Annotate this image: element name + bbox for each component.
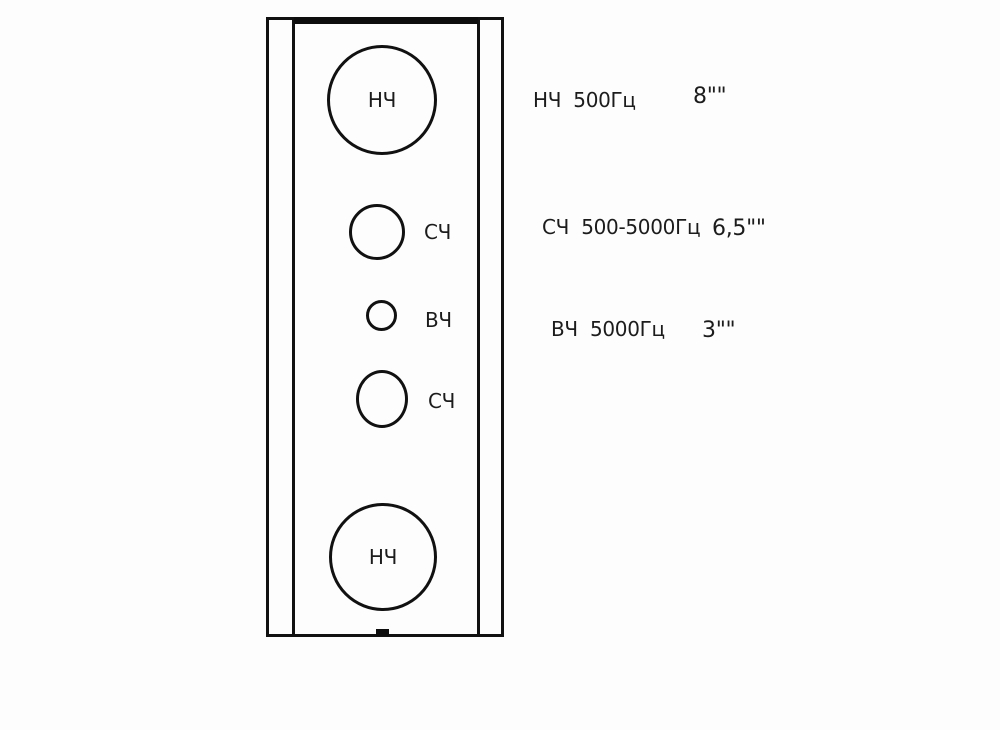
annotation-midrange-frequency: СЧ 500-5000Гц: [542, 215, 700, 239]
annotation-tweeter-frequency: ВЧ 5000Гц: [551, 317, 665, 341]
cabinet-bottom-center-mark: [376, 629, 389, 636]
annotation-woofer-frequency: НЧ 500Гц: [533, 88, 636, 112]
annotation-woofer-size: 8"": [693, 84, 726, 109]
midrange-upper-circle: [349, 204, 405, 260]
tweeter-circle: [366, 300, 397, 331]
tweeter-label: ВЧ: [425, 308, 452, 332]
cabinet-left-inner-wall-line: [292, 17, 295, 637]
midrange-lower-label: СЧ: [428, 389, 455, 413]
woofer-top-label: НЧ: [368, 88, 396, 112]
speaker-diagram: НЧ СЧ ВЧ СЧ НЧ НЧ 500Гц 8"" СЧ 500-5000Г…: [0, 0, 1000, 730]
annotation-tweeter-size: 3"": [702, 318, 735, 343]
woofer-top-circle: НЧ: [327, 45, 437, 155]
annotation-midrange-size: 6,5"": [712, 216, 766, 241]
midrange-upper-label: СЧ: [424, 220, 451, 244]
woofer-bottom-label: НЧ: [369, 545, 397, 569]
cabinet-top-bar: [294, 17, 478, 24]
cabinet-right-inner-wall-line: [477, 17, 480, 637]
woofer-bottom-circle: НЧ: [329, 503, 437, 611]
midrange-lower-circle: [356, 370, 408, 428]
